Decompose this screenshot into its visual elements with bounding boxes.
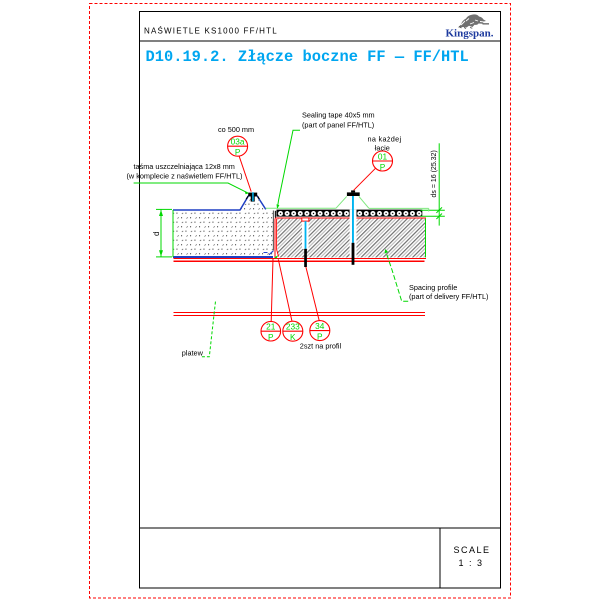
svg-text:taśma uszczelniająca 12x8 mm: taśma uszczelniająca 12x8 mm xyxy=(134,162,235,171)
svg-text:D10.19.2. Złącze boczne FF — F: D10.19.2. Złącze boczne FF — FF/HTL xyxy=(146,48,469,66)
svg-text:Sealing tape 40x5 mm: Sealing tape 40x5 mm xyxy=(302,110,375,119)
svg-text:NAŚWIETLE KS1000 FF/HTL: NAŚWIETLE KS1000 FF/HTL xyxy=(144,27,278,36)
svg-text:34: 34 xyxy=(315,321,325,331)
svg-text:P: P xyxy=(268,332,274,342)
svg-text:Spacing profile: Spacing profile xyxy=(409,283,457,292)
svg-text:co 500 mm: co 500 mm xyxy=(218,125,254,134)
svg-text:(part of panel FF/HTL): (part of panel FF/HTL) xyxy=(302,120,374,129)
svg-text:P: P xyxy=(235,147,241,157)
svg-text:platew: platew xyxy=(182,349,204,358)
svg-text:K: K xyxy=(290,332,296,342)
svg-text:ds = 16 (25.32): ds = 16 (25.32) xyxy=(431,150,438,197)
svg-text:na każdej: na każdej xyxy=(368,134,402,143)
svg-text:233: 233 xyxy=(286,322,300,332)
svg-text:P: P xyxy=(317,331,323,341)
svg-text:Kingspan.: Kingspan. xyxy=(446,28,494,40)
svg-text:1 : 3: 1 : 3 xyxy=(458,558,483,568)
svg-text:21: 21 xyxy=(266,322,276,332)
svg-text:łacie: łacie xyxy=(375,144,390,153)
svg-text:(w komplecie z naświetlem FF/H: (w komplecie z naświetlem FF/HTL) xyxy=(127,172,243,181)
svg-text:01: 01 xyxy=(378,152,388,162)
svg-text:d: d xyxy=(152,232,161,236)
svg-text:SCALE: SCALE xyxy=(453,545,490,555)
svg-text:P: P xyxy=(380,162,386,172)
svg-text:2szt na profil: 2szt na profil xyxy=(300,342,342,351)
svg-text:(part of delivery FF/HTL): (part of delivery FF/HTL) xyxy=(409,292,488,301)
svg-text:03a: 03a xyxy=(231,137,245,147)
